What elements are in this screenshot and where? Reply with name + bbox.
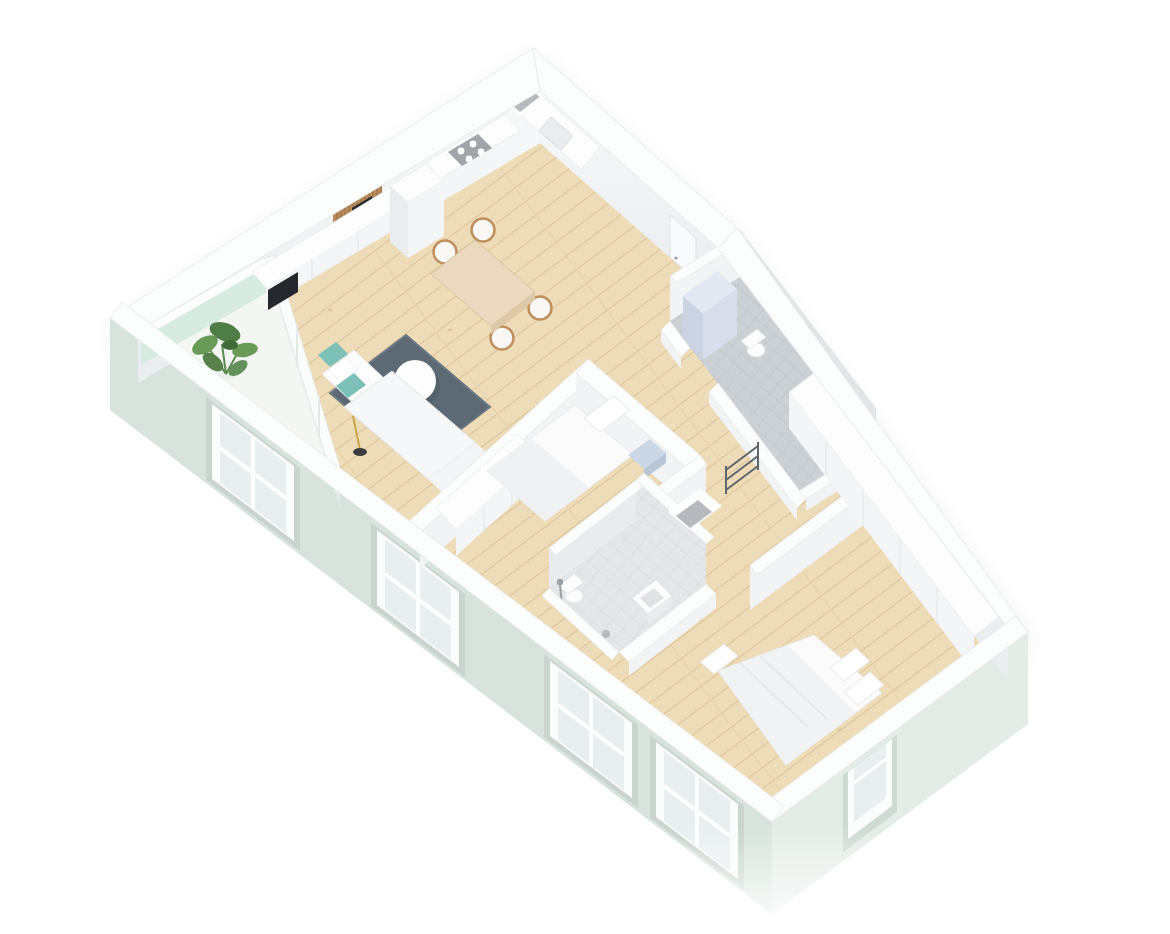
shower-head [557,579,563,585]
bottom-fade [0,826,1170,934]
floorplan-stage [0,0,1170,934]
door-handle [674,256,677,259]
floorplan-render [0,0,1170,934]
shower-drain [602,630,610,638]
floor-lamp-base [353,448,367,456]
